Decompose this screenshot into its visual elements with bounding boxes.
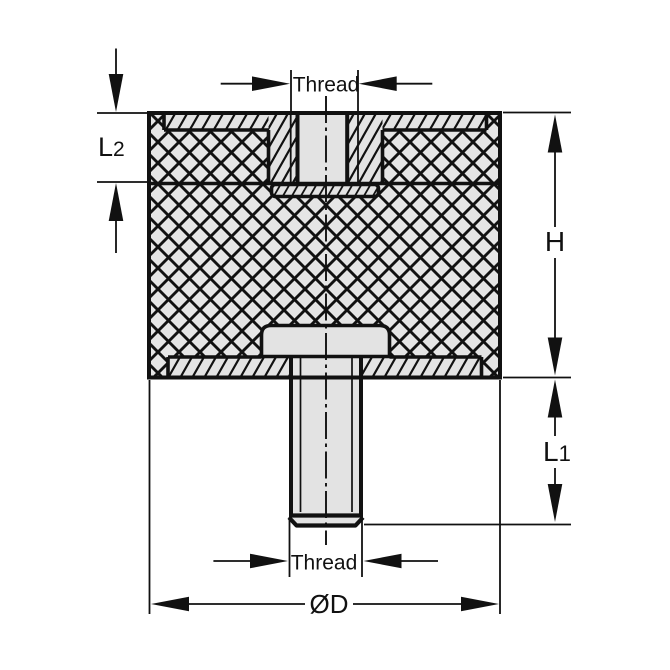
svg-text:L1: L1 (543, 436, 571, 467)
svg-text:H: H (545, 226, 565, 257)
svg-text:Thread: Thread (291, 552, 358, 575)
svg-text:ØD: ØD (310, 589, 349, 619)
svg-text:Thread: Thread (293, 74, 360, 97)
